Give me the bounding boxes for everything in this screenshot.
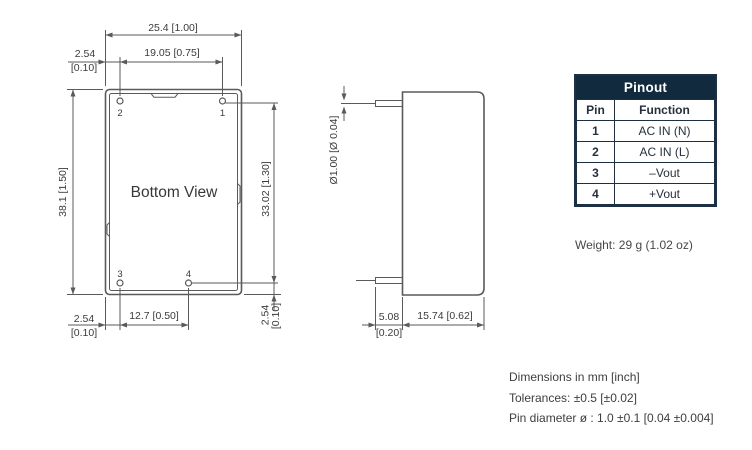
dim-pin-diameter: Ø1.00 [Ø 0.04] (328, 115, 340, 184)
pinout-grid: Pin Function 1 AC IN (N) 2 AC IN (L) 3 –… (576, 99, 715, 205)
pinout-title: Pinout (576, 76, 715, 99)
dim-edge-offset-top-mm: 2.54 (75, 48, 96, 60)
pinout-col-function: Function (615, 100, 715, 121)
note-tolerances: Tolerances: ±0.5 [±0.02] (509, 388, 714, 409)
pin-3-label: 3 (117, 269, 122, 280)
bottom-view: 2 1 3 4 Bottom View (106, 90, 242, 295)
pinout-row-2: 2 AC IN (L) (577, 142, 715, 163)
pinout-row-2-pin: 2 (577, 142, 615, 163)
pinout-row-4: 4 +Vout (577, 184, 715, 205)
pinout-row-3-pin: 3 (577, 163, 615, 184)
dim-body-depth: 15.74 [0.62] (417, 310, 473, 322)
pin-1-label: 1 (220, 108, 225, 119)
pin-2-marker (117, 98, 123, 104)
dim-pin-pitch-top: 19.05 [0.75] (144, 47, 200, 59)
datasheet-mechanical-page: 2 1 3 4 Bottom View 25.4 [1.00] 19.05 [0… (0, 0, 752, 450)
pin-4-marker (186, 280, 192, 286)
dim-pin-length-in: [0.20] (376, 327, 402, 339)
note-units: Dimensions in mm [inch] (509, 367, 714, 388)
dim-overall-height: 38.1 [1.50] (57, 167, 69, 217)
pinout-row-3-function: –Vout (615, 163, 715, 184)
pinout-row-1-pin: 1 (577, 121, 615, 142)
pin-3-marker (117, 280, 123, 286)
mechanical-drawing: 2 1 3 4 Bottom View 25.4 [1.00] 19.05 [0… (0, 0, 540, 360)
pinout-table: Pinout Pin Function 1 AC IN (N) 2 AC IN … (574, 74, 717, 207)
dim-edge-offset-right-in: [0.10] (270, 303, 282, 329)
dim-edge-offset-top-in: [0.10] (71, 62, 97, 74)
pinout-col-pin: Pin (577, 100, 615, 121)
pinout-row-3: 3 –Vout (577, 163, 715, 184)
bottom-view-title: Bottom View (131, 184, 219, 201)
dim-overall-width: 25.4 [1.00] (148, 22, 198, 34)
pin-1-marker (220, 98, 226, 104)
pinout-row-1-function: AC IN (N) (615, 121, 715, 142)
dim-pin-length-mm: 5.08 (379, 311, 400, 323)
pinout-row-4-pin: 4 (577, 184, 615, 205)
pin-4-label: 4 (186, 269, 191, 280)
pinout-row-1: 1 AC IN (N) (577, 121, 715, 142)
side-view (341, 92, 484, 295)
side-view-outline (403, 92, 485, 295)
pinout-row-2-function: AC IN (L) (615, 142, 715, 163)
side-pin-top (376, 101, 403, 107)
pinout-header-row: Pin Function (577, 100, 715, 121)
dim-pin-pitch-vertical: 33.02 [1.30] (260, 161, 272, 217)
note-pin-diameter: Pin diameter ø : 1.0 ±0.1 [0.04 ±0.004] (509, 408, 714, 429)
dim-edge-offset-bottom-in: [0.10] (71, 327, 97, 339)
weight-note: Weight: 29 g (1.02 oz) (575, 238, 693, 252)
dim-pin-pitch-bottom: 12.7 [0.50] (129, 310, 179, 322)
side-pin-bottom (376, 278, 403, 284)
pinout-row-4-function: +Vout (615, 184, 715, 205)
dim-edge-offset-bottom-mm: 2.54 (74, 313, 95, 325)
dimension-notes: Dimensions in mm [inch] Tolerances: ±0.5… (509, 367, 714, 429)
pin-2-label: 2 (117, 108, 122, 119)
